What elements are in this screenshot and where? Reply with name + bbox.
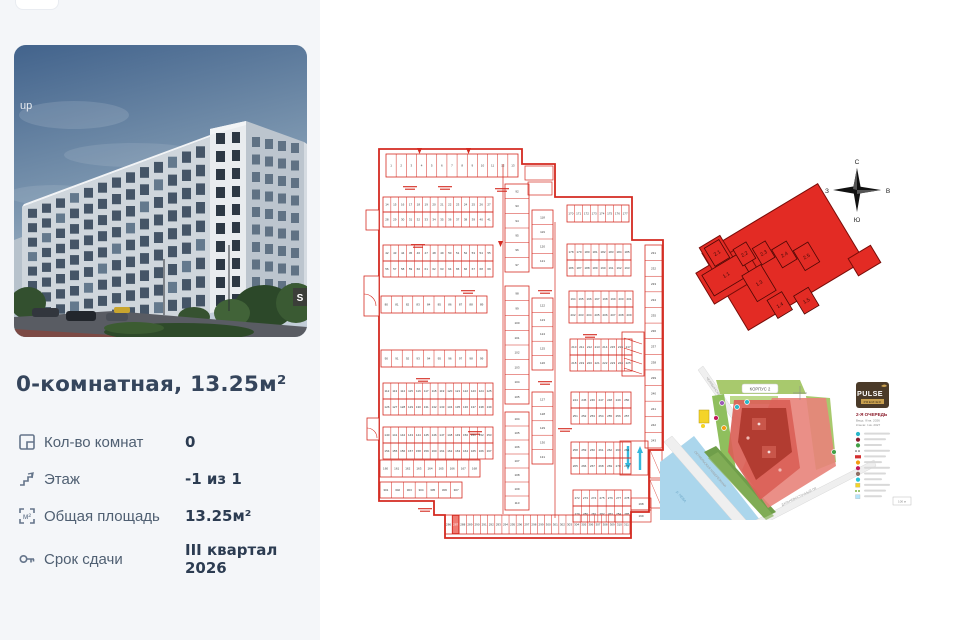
svg-text:193: 193 bbox=[624, 266, 629, 270]
svg-text:245: 245 bbox=[581, 398, 586, 402]
stall-row: 1401411421431441451461471481491501511521… bbox=[383, 427, 493, 443]
storage-stack: 118119120121 bbox=[532, 210, 553, 268]
svg-text:136: 136 bbox=[463, 405, 468, 409]
svg-text:296: 296 bbox=[517, 523, 522, 527]
stall-row: 2829303132333435363738394041 bbox=[383, 212, 493, 227]
svg-text:207: 207 bbox=[610, 313, 615, 317]
stall-row: 258259260261262263264 bbox=[571, 442, 631, 458]
svg-text:157: 157 bbox=[408, 449, 413, 453]
svg-text:214: 214 bbox=[602, 345, 607, 349]
svg-text:288: 288 bbox=[460, 523, 465, 527]
svg-text:118: 118 bbox=[432, 389, 437, 393]
svg-text:307: 307 bbox=[595, 523, 600, 527]
svg-text:114: 114 bbox=[400, 389, 405, 393]
svg-text:16: 16 bbox=[401, 203, 405, 207]
svg-text:60: 60 bbox=[417, 267, 421, 271]
svg-text:124: 124 bbox=[479, 389, 484, 393]
svg-text:119: 119 bbox=[440, 389, 445, 393]
svg-text:196: 196 bbox=[586, 297, 591, 301]
svg-text:90: 90 bbox=[385, 357, 389, 361]
svg-text:91: 91 bbox=[395, 357, 399, 361]
area-icon: м² bbox=[18, 507, 36, 525]
svg-text:63: 63 bbox=[440, 267, 444, 271]
svg-text:117: 117 bbox=[424, 389, 429, 393]
svg-text:195: 195 bbox=[578, 297, 583, 301]
svg-text:163: 163 bbox=[455, 449, 460, 453]
svg-text:96: 96 bbox=[515, 248, 519, 252]
svg-text:93: 93 bbox=[515, 204, 519, 208]
parking-floor-plan[interactable]: 1234567891011121314151617181920212223242… bbox=[358, 146, 670, 570]
spec-value: III квартал 2026 bbox=[185, 541, 308, 577]
stall-row: 279280281282283284285 bbox=[573, 506, 631, 522]
svg-text:55: 55 bbox=[487, 251, 491, 255]
svg-text:123: 123 bbox=[540, 318, 545, 322]
svg-text:199: 199 bbox=[638, 514, 643, 518]
svg-text:243: 243 bbox=[651, 438, 656, 442]
svg-text:127: 127 bbox=[392, 405, 397, 409]
svg-text:188: 188 bbox=[584, 266, 589, 270]
svg-text:167: 167 bbox=[461, 467, 466, 471]
svg-text:308: 308 bbox=[603, 523, 608, 527]
svg-text:141: 141 bbox=[392, 433, 397, 437]
svg-text:282: 282 bbox=[599, 512, 604, 516]
svg-text:41: 41 bbox=[487, 218, 491, 222]
compass-west-label: З bbox=[825, 188, 829, 195]
svg-text:181: 181 bbox=[592, 250, 597, 254]
svg-text:36: 36 bbox=[448, 218, 452, 222]
stall-row: 301302303304305306307 bbox=[380, 482, 462, 498]
storage-stack: 929394959697 bbox=[505, 184, 529, 272]
svg-text:32: 32 bbox=[417, 218, 421, 222]
svg-text:146: 146 bbox=[432, 433, 437, 437]
svg-text:40: 40 bbox=[480, 218, 484, 222]
svg-text:178: 178 bbox=[568, 250, 573, 254]
svg-text:109: 109 bbox=[514, 487, 519, 491]
svg-text:м²: м² bbox=[23, 512, 32, 521]
svg-text:284: 284 bbox=[616, 512, 621, 516]
svg-text:57: 57 bbox=[393, 267, 397, 271]
svg-text:81: 81 bbox=[395, 303, 399, 307]
svg-text:97: 97 bbox=[459, 357, 463, 361]
svg-text:92: 92 bbox=[406, 357, 410, 361]
svg-text:278: 278 bbox=[624, 496, 629, 500]
svg-text:69: 69 bbox=[487, 267, 491, 271]
svg-text:251: 251 bbox=[573, 414, 578, 418]
svg-text:145: 145 bbox=[424, 433, 429, 437]
svg-text:6: 6 bbox=[441, 164, 443, 168]
svg-text:297: 297 bbox=[524, 523, 529, 527]
svg-text:264: 264 bbox=[624, 448, 629, 452]
svg-text:285: 285 bbox=[624, 512, 629, 516]
svg-text:152: 152 bbox=[479, 433, 484, 437]
svg-text:122: 122 bbox=[540, 303, 545, 307]
svg-text:33: 33 bbox=[425, 218, 429, 222]
svg-text:94: 94 bbox=[427, 357, 431, 361]
svg-text:210: 210 bbox=[571, 345, 576, 349]
svg-text:159: 159 bbox=[424, 449, 429, 453]
stall-row: 170171172173174175176177 bbox=[567, 205, 629, 222]
svg-text:30: 30 bbox=[401, 218, 405, 222]
storage-stack: 104105106107108109110 bbox=[505, 412, 529, 510]
spec-row-3: м²Общая площадь13.25м² bbox=[18, 504, 308, 528]
svg-text:21: 21 bbox=[440, 203, 444, 207]
svg-text:20: 20 bbox=[432, 203, 436, 207]
svg-text:201: 201 bbox=[626, 297, 631, 301]
svg-text:132: 132 bbox=[432, 405, 437, 409]
svg-text:311: 311 bbox=[624, 523, 629, 527]
svg-text:54: 54 bbox=[480, 251, 484, 255]
svg-text:270: 270 bbox=[616, 464, 621, 468]
legend-item bbox=[856, 495, 883, 499]
svg-text:29: 29 bbox=[393, 218, 397, 222]
stall-row: 5657585960616263646566676869 bbox=[383, 261, 493, 277]
svg-text:26: 26 bbox=[480, 203, 484, 207]
svg-text:143: 143 bbox=[408, 433, 413, 437]
svg-text:235: 235 bbox=[651, 313, 656, 317]
svg-text:28: 28 bbox=[385, 218, 389, 222]
svg-text:82: 82 bbox=[406, 303, 410, 307]
svg-text:130: 130 bbox=[540, 441, 545, 445]
svg-text:95: 95 bbox=[515, 234, 519, 238]
svg-text:249: 249 bbox=[616, 398, 621, 402]
svg-text:1: 1 bbox=[390, 164, 392, 168]
stall-row: 12345678910111213 bbox=[386, 154, 518, 177]
svg-text:128: 128 bbox=[400, 405, 405, 409]
svg-text:134: 134 bbox=[447, 405, 452, 409]
svg-text:237: 237 bbox=[651, 345, 656, 349]
svg-text:19: 19 bbox=[425, 203, 429, 207]
svg-text:302: 302 bbox=[560, 523, 565, 527]
svg-text:165: 165 bbox=[439, 467, 444, 471]
svg-text:44: 44 bbox=[401, 251, 405, 255]
svg-text:84: 84 bbox=[427, 303, 431, 307]
svg-text:96: 96 bbox=[448, 357, 452, 361]
svg-text:194: 194 bbox=[570, 297, 575, 301]
svg-text:164: 164 bbox=[427, 467, 432, 471]
svg-text:279: 279 bbox=[575, 512, 580, 516]
svg-text:126: 126 bbox=[384, 405, 389, 409]
stall-row: 4243444546474849505152535455 bbox=[383, 245, 493, 261]
svg-text:112: 112 bbox=[385, 389, 390, 393]
svg-text:215: 215 bbox=[610, 345, 615, 349]
svg-text:50: 50 bbox=[448, 251, 452, 255]
svg-text:199: 199 bbox=[610, 297, 615, 301]
svg-text:238: 238 bbox=[651, 360, 656, 364]
masterplan-block: С Ю З В 2.11.12.22.32.42.51.31.41.5 bbox=[690, 150, 950, 340]
svg-text:203: 203 bbox=[578, 313, 583, 317]
compass-south-label: Ю bbox=[854, 217, 861, 224]
legend-item bbox=[856, 478, 882, 482]
svg-text:48: 48 bbox=[432, 251, 436, 255]
svg-text:173: 173 bbox=[592, 212, 597, 216]
photo-watermark: up bbox=[20, 100, 32, 112]
svg-text:25: 25 bbox=[472, 203, 476, 207]
svg-text:42: 42 bbox=[385, 251, 389, 255]
svg-text:23: 23 bbox=[456, 203, 460, 207]
svg-text:120: 120 bbox=[540, 244, 545, 248]
svg-text:125: 125 bbox=[487, 389, 492, 393]
svg-text:126: 126 bbox=[540, 361, 545, 365]
legend-item bbox=[856, 432, 890, 436]
svg-text:101: 101 bbox=[514, 336, 519, 340]
queue-title: 2-Я ОЧЕРЕДЬ bbox=[856, 412, 888, 417]
svg-text:301: 301 bbox=[383, 488, 388, 492]
stall-row: 1261271281291301311321331341351361371381… bbox=[383, 399, 493, 415]
svg-text:177: 177 bbox=[623, 212, 628, 216]
svg-text:131: 131 bbox=[540, 455, 545, 459]
svg-text:38: 38 bbox=[464, 218, 468, 222]
stall-row: 244245246247248249250 bbox=[571, 392, 631, 408]
legend-item bbox=[856, 443, 882, 447]
svg-text:221: 221 bbox=[595, 361, 600, 365]
svg-text:58: 58 bbox=[401, 267, 405, 271]
svg-text:269: 269 bbox=[607, 464, 612, 468]
spec-label: Кол-во комнат bbox=[44, 434, 185, 451]
svg-text:301: 301 bbox=[553, 523, 558, 527]
map-legend: PULSE PREMIER 2-Я ОЧЕРЕДЬ Ввод: III кв. … bbox=[855, 382, 911, 505]
spec-value: -1 из 1 bbox=[185, 470, 308, 488]
svg-text:31: 31 bbox=[409, 218, 413, 222]
svg-text:2: 2 bbox=[400, 164, 402, 168]
svg-text:242: 242 bbox=[651, 423, 656, 427]
svg-text:68: 68 bbox=[480, 267, 484, 271]
svg-text:276: 276 bbox=[608, 496, 613, 500]
svg-text:259: 259 bbox=[581, 448, 586, 452]
svg-text:128: 128 bbox=[540, 412, 545, 416]
svg-text:274: 274 bbox=[591, 496, 596, 500]
svg-text:27: 27 bbox=[487, 203, 491, 207]
svg-text:202: 202 bbox=[570, 313, 575, 317]
svg-text:206: 206 bbox=[602, 313, 607, 317]
stall-row: 265266267268269270271 bbox=[571, 458, 631, 474]
svg-text:11: 11 bbox=[491, 164, 494, 168]
svg-text:43: 43 bbox=[393, 251, 397, 255]
svg-text:100: 100 bbox=[514, 321, 519, 325]
svg-text:223: 223 bbox=[610, 361, 615, 365]
svg-text:104: 104 bbox=[514, 417, 519, 421]
svg-text:290: 290 bbox=[475, 523, 480, 527]
svg-text:166: 166 bbox=[479, 449, 484, 453]
svg-text:17: 17 bbox=[409, 203, 413, 207]
developer-badge: S bbox=[293, 288, 307, 306]
svg-text:155: 155 bbox=[392, 449, 397, 453]
svg-text:260: 260 bbox=[590, 448, 595, 452]
svg-text:98: 98 bbox=[515, 292, 519, 296]
svg-text:304: 304 bbox=[418, 488, 423, 492]
svg-text:151: 151 bbox=[471, 433, 476, 437]
svg-text:310: 310 bbox=[617, 523, 622, 527]
svg-text:66: 66 bbox=[464, 267, 468, 271]
svg-text:125: 125 bbox=[540, 347, 545, 351]
svg-text:108: 108 bbox=[514, 473, 519, 477]
building-photo[interactable]: up S bbox=[14, 45, 307, 337]
svg-text:286: 286 bbox=[446, 523, 451, 527]
stall-row: 218219220221222223224225 bbox=[570, 355, 632, 371]
svg-text:107: 107 bbox=[514, 459, 519, 463]
svg-text:45: 45 bbox=[409, 251, 413, 255]
svg-text:9: 9 bbox=[471, 164, 473, 168]
svg-text:13: 13 bbox=[511, 164, 515, 168]
svg-text:164: 164 bbox=[463, 449, 468, 453]
svg-text:124: 124 bbox=[540, 332, 545, 336]
svg-text:121: 121 bbox=[540, 259, 545, 263]
svg-text:156: 156 bbox=[400, 449, 405, 453]
svg-text:303: 303 bbox=[567, 523, 572, 527]
svg-text:174: 174 bbox=[599, 212, 604, 216]
svg-text:257: 257 bbox=[624, 414, 629, 418]
svg-text:293: 293 bbox=[496, 523, 501, 527]
svg-text:197: 197 bbox=[594, 297, 599, 301]
svg-text:15: 15 bbox=[393, 203, 397, 207]
svg-text:184: 184 bbox=[616, 250, 621, 254]
svg-text:161: 161 bbox=[394, 467, 399, 471]
svg-text:253: 253 bbox=[590, 414, 595, 418]
svg-text:105: 105 bbox=[514, 431, 519, 435]
svg-text:304: 304 bbox=[574, 523, 579, 527]
svg-text:265: 265 bbox=[573, 464, 578, 468]
svg-text:258: 258 bbox=[573, 448, 578, 452]
spec-value: 13.25м² bbox=[185, 507, 308, 525]
svg-text:189: 189 bbox=[592, 266, 597, 270]
spec-row-2: Этаж-1 из 1 bbox=[18, 467, 308, 491]
top-cropped-pill bbox=[15, 0, 59, 10]
svg-text:309: 309 bbox=[610, 523, 615, 527]
svg-text:239: 239 bbox=[651, 376, 656, 380]
svg-text:252: 252 bbox=[581, 414, 586, 418]
svg-text:105: 105 bbox=[514, 395, 519, 399]
svg-text:102: 102 bbox=[514, 351, 519, 355]
svg-text:121: 121 bbox=[455, 389, 460, 393]
svg-text:209: 209 bbox=[626, 313, 631, 317]
svg-text:289: 289 bbox=[467, 523, 472, 527]
svg-text:89: 89 bbox=[480, 303, 484, 307]
legend-item bbox=[855, 490, 886, 492]
svg-text:147: 147 bbox=[439, 433, 444, 437]
pulse-logo-subtext: PREMIER bbox=[864, 400, 882, 404]
svg-text:219: 219 bbox=[579, 361, 584, 365]
svg-text:255: 255 bbox=[607, 414, 612, 418]
svg-text:300: 300 bbox=[546, 523, 551, 527]
svg-text:250: 250 bbox=[624, 398, 629, 402]
svg-text:122: 122 bbox=[463, 389, 468, 393]
svg-text:233: 233 bbox=[651, 282, 656, 286]
svg-text:273: 273 bbox=[583, 496, 588, 500]
svg-text:39: 39 bbox=[472, 218, 476, 222]
svg-text:137: 137 bbox=[471, 405, 476, 409]
compass-north-label: С bbox=[855, 159, 860, 166]
svg-text:176: 176 bbox=[615, 212, 620, 216]
stall-row: 210211212213214215216217 bbox=[570, 339, 632, 355]
svg-text:138: 138 bbox=[479, 405, 484, 409]
building-footprint[interactable]: 2.11.12.22.32.42.51.31.41.5 bbox=[690, 172, 883, 340]
svg-text:24: 24 bbox=[464, 203, 468, 207]
svg-text:85: 85 bbox=[438, 303, 442, 307]
svg-text:275: 275 bbox=[599, 496, 604, 500]
svg-text:216: 216 bbox=[618, 345, 623, 349]
svg-text:217: 217 bbox=[626, 345, 631, 349]
svg-text:167: 167 bbox=[487, 449, 492, 453]
svg-text:83: 83 bbox=[416, 303, 420, 307]
svg-text:110: 110 bbox=[515, 501, 520, 505]
svg-text:291: 291 bbox=[482, 523, 487, 527]
svg-text:231: 231 bbox=[651, 251, 656, 255]
storage-stack: 9899100101102103104105 bbox=[505, 286, 529, 404]
svg-text:205: 205 bbox=[594, 313, 599, 317]
stall-row: 1121131141151161171181191201211221231241… bbox=[383, 383, 493, 399]
svg-text:150: 150 bbox=[463, 433, 468, 437]
stall-row: 2862872882892902912922932942952962972982… bbox=[445, 515, 630, 534]
svg-text:287: 287 bbox=[453, 523, 458, 527]
svg-text:192: 192 bbox=[616, 266, 621, 270]
svg-text:99: 99 bbox=[515, 306, 519, 310]
listing-sidebar: up S 0-комнатная, 13.25м² Кол-во комнат0… bbox=[0, 0, 320, 640]
svg-text:244: 244 bbox=[573, 398, 578, 402]
svg-text:92: 92 bbox=[515, 190, 519, 194]
svg-text:129: 129 bbox=[540, 426, 545, 430]
pulse-logo-text: PULSE bbox=[857, 389, 883, 398]
stall-row: 1541551561571581591601611621631641651661… bbox=[383, 443, 493, 459]
svg-text:7: 7 bbox=[451, 164, 453, 168]
stall-row: 90919293949596979899 bbox=[381, 350, 487, 367]
spec-row-4: Срок сдачиIII квартал 2026 bbox=[18, 541, 308, 565]
svg-text:8: 8 bbox=[461, 164, 463, 168]
svg-text:46: 46 bbox=[417, 251, 421, 255]
small-room: 198 bbox=[631, 498, 651, 510]
legend-item bbox=[856, 483, 891, 487]
queue-line2: Ключи: I кв. 2027 bbox=[856, 423, 881, 427]
storage-stack: 122123124125126 bbox=[532, 298, 553, 370]
korpus-label: КОРПУС 2 bbox=[742, 384, 778, 393]
svg-text:65: 65 bbox=[456, 267, 460, 271]
svg-text:34: 34 bbox=[432, 218, 436, 222]
svg-text:S: S bbox=[297, 293, 304, 304]
stall-row: 272273274275276277278 bbox=[573, 490, 631, 506]
svg-text:61: 61 bbox=[425, 267, 429, 271]
svg-text:135: 135 bbox=[455, 405, 460, 409]
svg-text:94: 94 bbox=[515, 219, 519, 223]
svg-text:240: 240 bbox=[651, 392, 656, 396]
svg-text:3: 3 bbox=[411, 164, 413, 168]
svg-text:268: 268 bbox=[598, 464, 603, 468]
svg-text:119: 119 bbox=[540, 230, 545, 234]
rooms-icon bbox=[18, 433, 36, 451]
svg-text:118: 118 bbox=[540, 215, 545, 219]
svg-text:190: 190 bbox=[600, 266, 605, 270]
svg-text:144: 144 bbox=[416, 433, 421, 437]
svg-text:104: 104 bbox=[514, 380, 519, 384]
svg-text:88: 88 bbox=[469, 303, 473, 307]
storage-stack: 127128129130131 bbox=[532, 392, 553, 464]
svg-text:191: 191 bbox=[608, 266, 613, 270]
svg-text:160: 160 bbox=[383, 467, 388, 471]
svg-text:295: 295 bbox=[510, 523, 515, 527]
svg-text:153: 153 bbox=[487, 433, 492, 437]
svg-text:305: 305 bbox=[430, 488, 435, 492]
svg-text:306: 306 bbox=[442, 488, 447, 492]
stall-row: 186187188189190191192193 bbox=[567, 260, 631, 276]
svg-text:222: 222 bbox=[602, 361, 607, 365]
svg-text:56: 56 bbox=[385, 267, 389, 271]
spec-list: Кол-во комнат0Этаж-1 из 1м²Общая площадь… bbox=[18, 430, 308, 578]
svg-text:95: 95 bbox=[438, 357, 442, 361]
svg-text:256: 256 bbox=[616, 414, 621, 418]
svg-text:149: 149 bbox=[455, 433, 460, 437]
svg-text:220: 220 bbox=[587, 361, 592, 365]
site-map[interactable]: р. НЕВА ЧЕЛЯБИНСКАЯ УЛ. ОКТЯБРЬСКАЯ НАБЕ… bbox=[658, 363, 950, 520]
stall-row: 202203204205206207208209 bbox=[569, 307, 633, 323]
floor-icon bbox=[18, 470, 36, 488]
spec-row-1: Кол-во комнат0 bbox=[18, 430, 308, 454]
